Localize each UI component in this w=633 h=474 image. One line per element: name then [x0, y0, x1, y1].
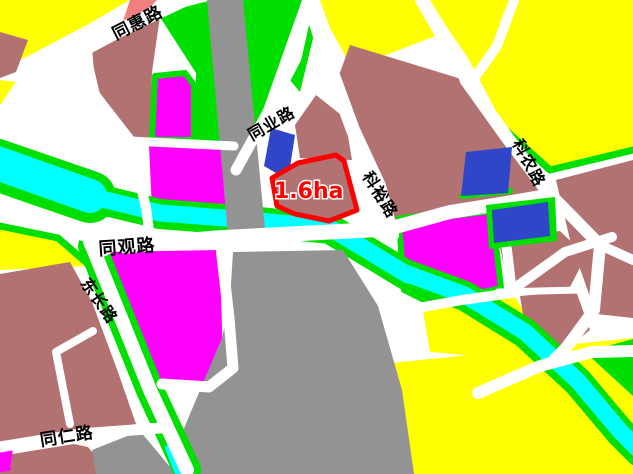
- tongguan-road-label: 同观路: [98, 234, 156, 260]
- road: [498, 290, 580, 292]
- area-size-label: 1.6ha: [274, 179, 343, 204]
- landuse-map-canvas[interactable]: 1.6ha 同惠路 同业路 科裕路 科农路 同观路 东长路 同仁路: [0, 0, 633, 474]
- road: [130, 141, 234, 146]
- parcel: [461, 147, 512, 196]
- parcel: [152, 73, 194, 140]
- landuse-map: 1.6ha 同惠路 同业路 科裕路 科农路 同观路 东长路 同仁路: [0, 0, 633, 474]
